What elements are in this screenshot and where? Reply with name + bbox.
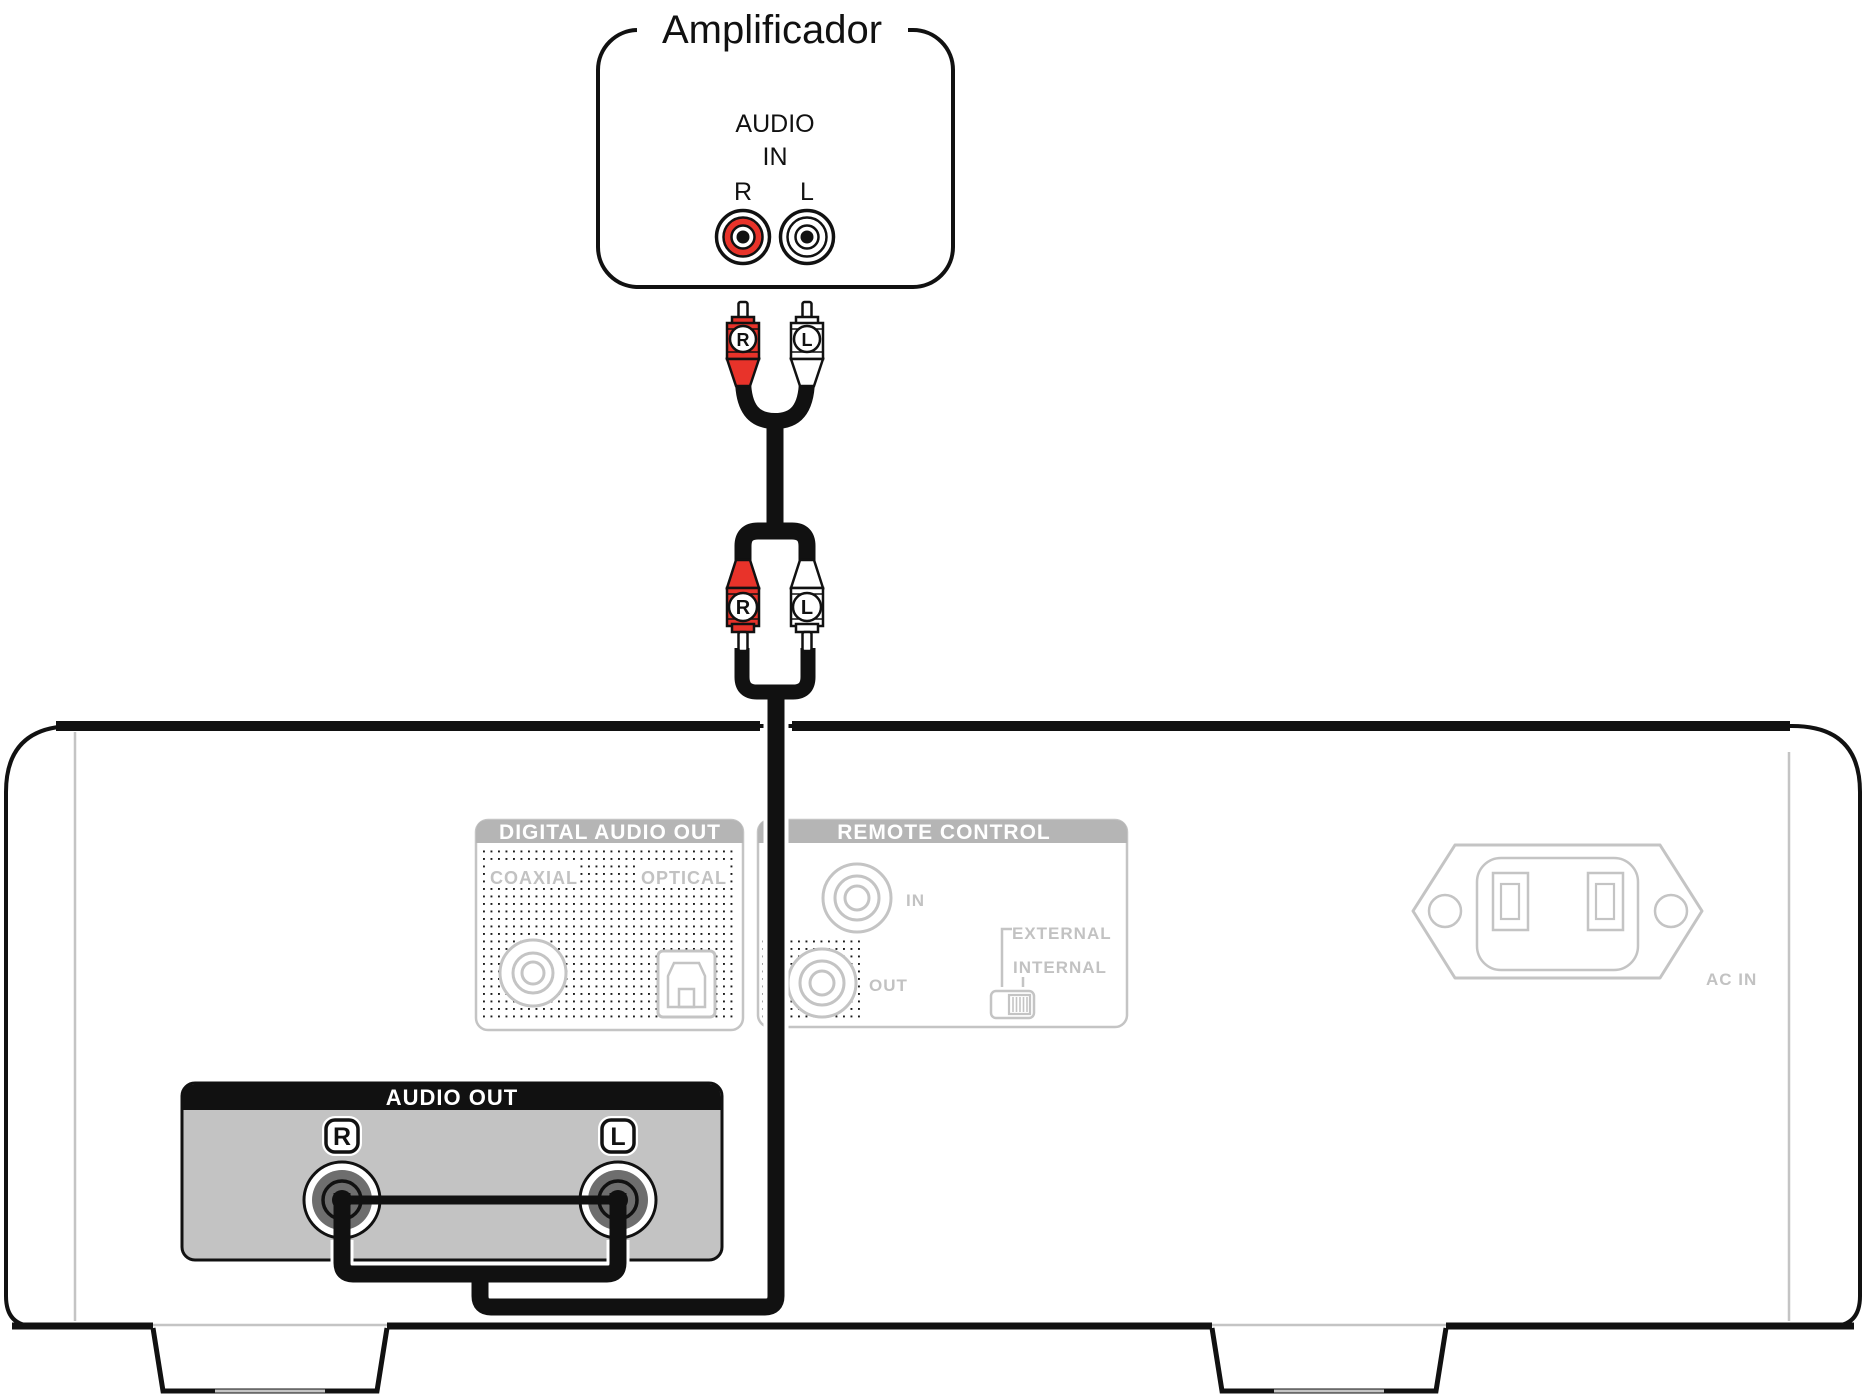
connection-diagram: DIGITAL AUDIO OUT COAXIAL OPTICAL REMOTE… [0,0,1866,1395]
remote-out-jack [788,949,856,1017]
amp-jack-right-label: R [734,178,752,206]
coaxial-label: COAXIAL [490,868,578,888]
device-foot-right [1212,1328,1446,1391]
audio-in-label-line2: IN [763,143,788,171]
audio-out-label-right: R [326,1120,358,1152]
internal-external-switch [991,991,1034,1018]
plug-letter: R [737,330,750,350]
remote-control-section: REMOTE CONTROL IN OUT EXTERNAL INTERNAL [758,820,1127,1027]
amp-audio-in-jack-left [781,211,834,264]
optical-label: OPTICAL [641,868,727,888]
plug-pin [803,632,812,651]
audio-out-section: AUDIO OUT R L [182,1083,722,1260]
amp-jack-left-label: L [800,178,814,206]
audio-out-label-left: L [602,1120,634,1152]
remote-out-label: OUT [869,976,908,995]
rca-plug-upper-left: L [791,302,823,386]
plug-letter: L [801,597,813,619]
audio-out-title: AUDIO OUT [386,1085,518,1110]
external-label: EXTERNAL [1012,924,1112,943]
svg-text:L: L [610,1123,625,1151]
ac-in-label: AC IN [1706,970,1757,989]
amplifier-title: Amplificador [662,8,882,52]
internal-label: INTERNAL [1013,958,1107,977]
remote-control-title: REMOTE CONTROL [837,821,1051,844]
remote-in-jack [823,864,891,932]
diagram-canvas: DIGITAL AUDIO OUT COAXIAL OPTICAL REMOTE… [0,0,1866,1395]
digital-audio-out-title: DIGITAL AUDIO OUT [499,821,721,844]
amplifier-box: Amplificador AUDIO IN R L [598,8,953,287]
rca-plug-lower-right: R [727,560,759,651]
coaxial-jack [500,940,566,1006]
amp-audio-in-jack-right [717,211,770,264]
device-foot-left [153,1328,387,1391]
cable-guide-bracket [742,648,808,692]
rca-plug-upper-right: R [727,302,759,386]
plug-pin [739,632,748,651]
plug-letter: L [802,330,813,350]
digital-audio-out-section: DIGITAL AUDIO OUT COAXIAL OPTICAL [476,820,743,1030]
rear-panel: DIGITAL AUDIO OUT COAXIAL OPTICAL REMOTE… [6,726,1860,1391]
remote-in-label: IN [906,891,925,910]
svg-text:R: R [333,1123,351,1151]
audio-in-label-line1: AUDIO [735,110,814,138]
rca-plug-lower-left: L [791,560,823,651]
optical-connector [658,951,715,1017]
plug-letter: R [736,597,751,619]
upper-cable-merge [743,378,807,421]
